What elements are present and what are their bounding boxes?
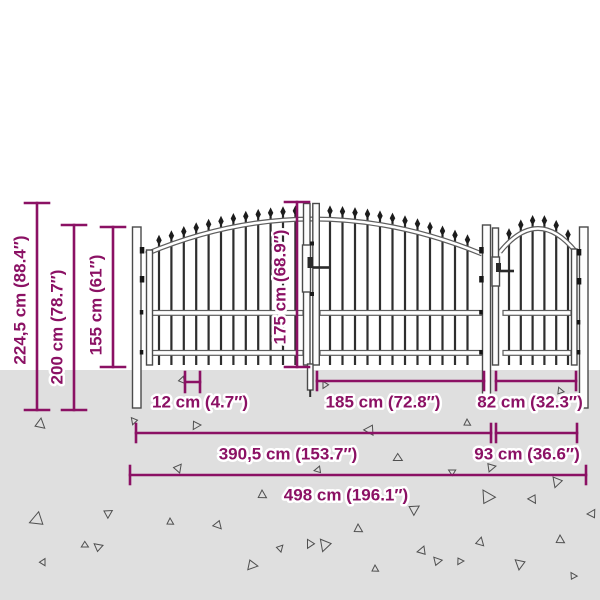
- rail-fitting: [140, 350, 144, 355]
- rail-fitting: [577, 350, 581, 355]
- dimension-label-bar-spacing: 12 cm (4.7″): [152, 393, 248, 412]
- right-leaf-bottom-rail: [320, 351, 482, 356]
- product-dimension-diagram: 224,5 cm (88.4″) 200 cm (78.7″) 155 cm (…: [0, 0, 600, 600]
- hinge-bracket: [140, 247, 145, 254]
- left-leaf-bottom-rail: [152, 351, 303, 356]
- rail-fitting: [479, 350, 483, 355]
- rail-fitting: [140, 310, 144, 315]
- dimension-label-double-leaf-width: 185 cm (72.8″): [326, 393, 441, 412]
- hinge-bracket: [479, 276, 484, 283]
- dimension-label-single-section-width: 93 cm (36.6″): [474, 445, 579, 464]
- hinge-bracket: [140, 276, 145, 283]
- left-end-post: [133, 227, 142, 408]
- single-gate-middle-rail: [503, 311, 571, 316]
- dimension-label-post-height: 200 cm (78.7″): [48, 270, 67, 385]
- single-gate-outer-stile: [572, 249, 578, 365]
- rail-fitting: [577, 320, 581, 325]
- rail-fitting: [479, 310, 483, 315]
- hinge-bracket: [577, 249, 582, 256]
- dimension-label-gate-height: 175 cm (68.9″): [271, 230, 290, 345]
- right-leaf-meeting-stile: [313, 204, 320, 366]
- right-leaf-middle-rail: [320, 311, 482, 316]
- hinge-bracket: [479, 247, 484, 254]
- single-gate-bottom-rail: [503, 351, 571, 356]
- dimension-label-total-height: 224,5 cm (88.4″): [11, 235, 30, 364]
- single-gate-lock-stile: [493, 228, 499, 365]
- dimension-label-side-height: 155 cm (61″): [87, 255, 106, 356]
- dimension-label-double-gate-total-width: 390,5 cm (153.7″): [219, 445, 358, 464]
- diagram-canvas: 224,5 cm (88.4″) 200 cm (78.7″) 155 cm (…: [0, 0, 600, 600]
- hinge-bracket: [577, 278, 582, 285]
- dimension-label-total-width: 498 cm (196.1″): [284, 486, 408, 505]
- left-leaf-outer-stile: [147, 250, 153, 365]
- dimension-label-single-gate-width: 82 cm (32.3″): [477, 393, 582, 412]
